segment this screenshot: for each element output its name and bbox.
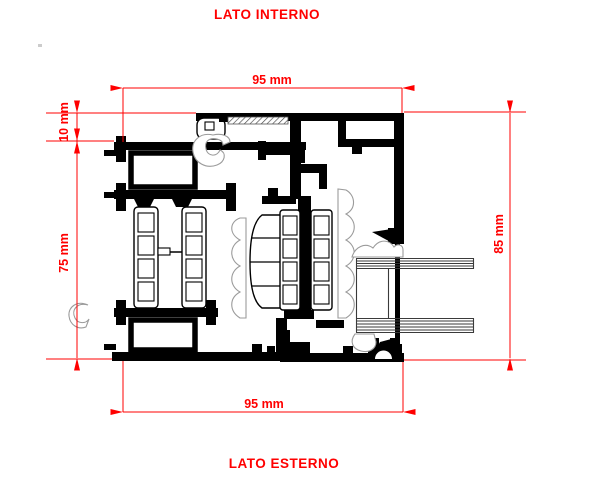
print-speck (38, 44, 42, 47)
dim-top-width-label: 95 mm (252, 73, 292, 87)
dim-inset-label: 10 mm (57, 102, 71, 142)
glazing-unit (356, 259, 474, 333)
label-lato-interno: LATO INTERNO (214, 7, 320, 22)
dim-right-height-label: 85 mm (492, 214, 506, 254)
dimension-top-width: 95 mm (123, 73, 402, 142)
dimension-inset: 10 mm (46, 102, 196, 142)
dimension-bottom-width: 95 mm (123, 361, 403, 412)
dim-bottom-width-label: 95 mm (244, 397, 284, 411)
profile-cross-section-drawing: 95 mm 10 mm 75 mm 85 mm 95 mm (0, 0, 600, 478)
label-lato-esterno: LATO ESTERNO (229, 456, 340, 471)
dimension-right-height: 85 mm (404, 112, 526, 360)
dim-left-height-label: 75 mm (57, 233, 71, 273)
